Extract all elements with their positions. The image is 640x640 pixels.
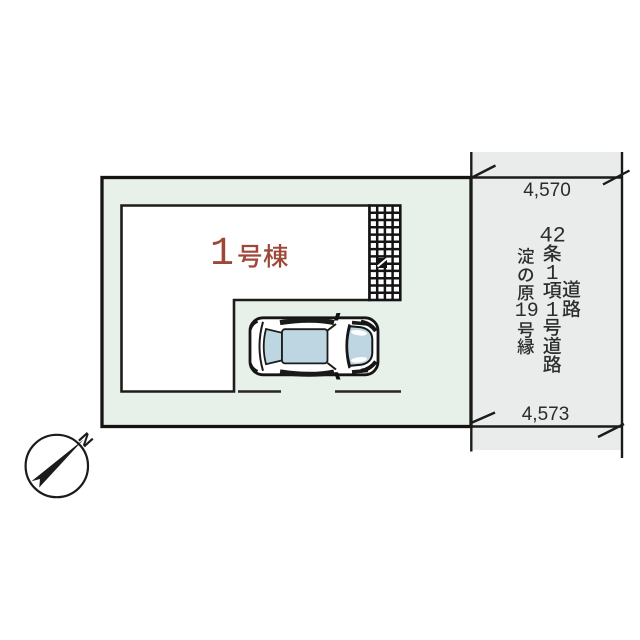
svg-text:42: 42 — [539, 224, 565, 249]
svg-text:19: 19 — [515, 300, 539, 323]
svg-text:4,573: 4,573 — [522, 404, 570, 425]
svg-text:1: 1 — [210, 232, 234, 277]
svg-text:4,570: 4,570 — [523, 180, 571, 201]
svg-text:N: N — [74, 429, 96, 451]
